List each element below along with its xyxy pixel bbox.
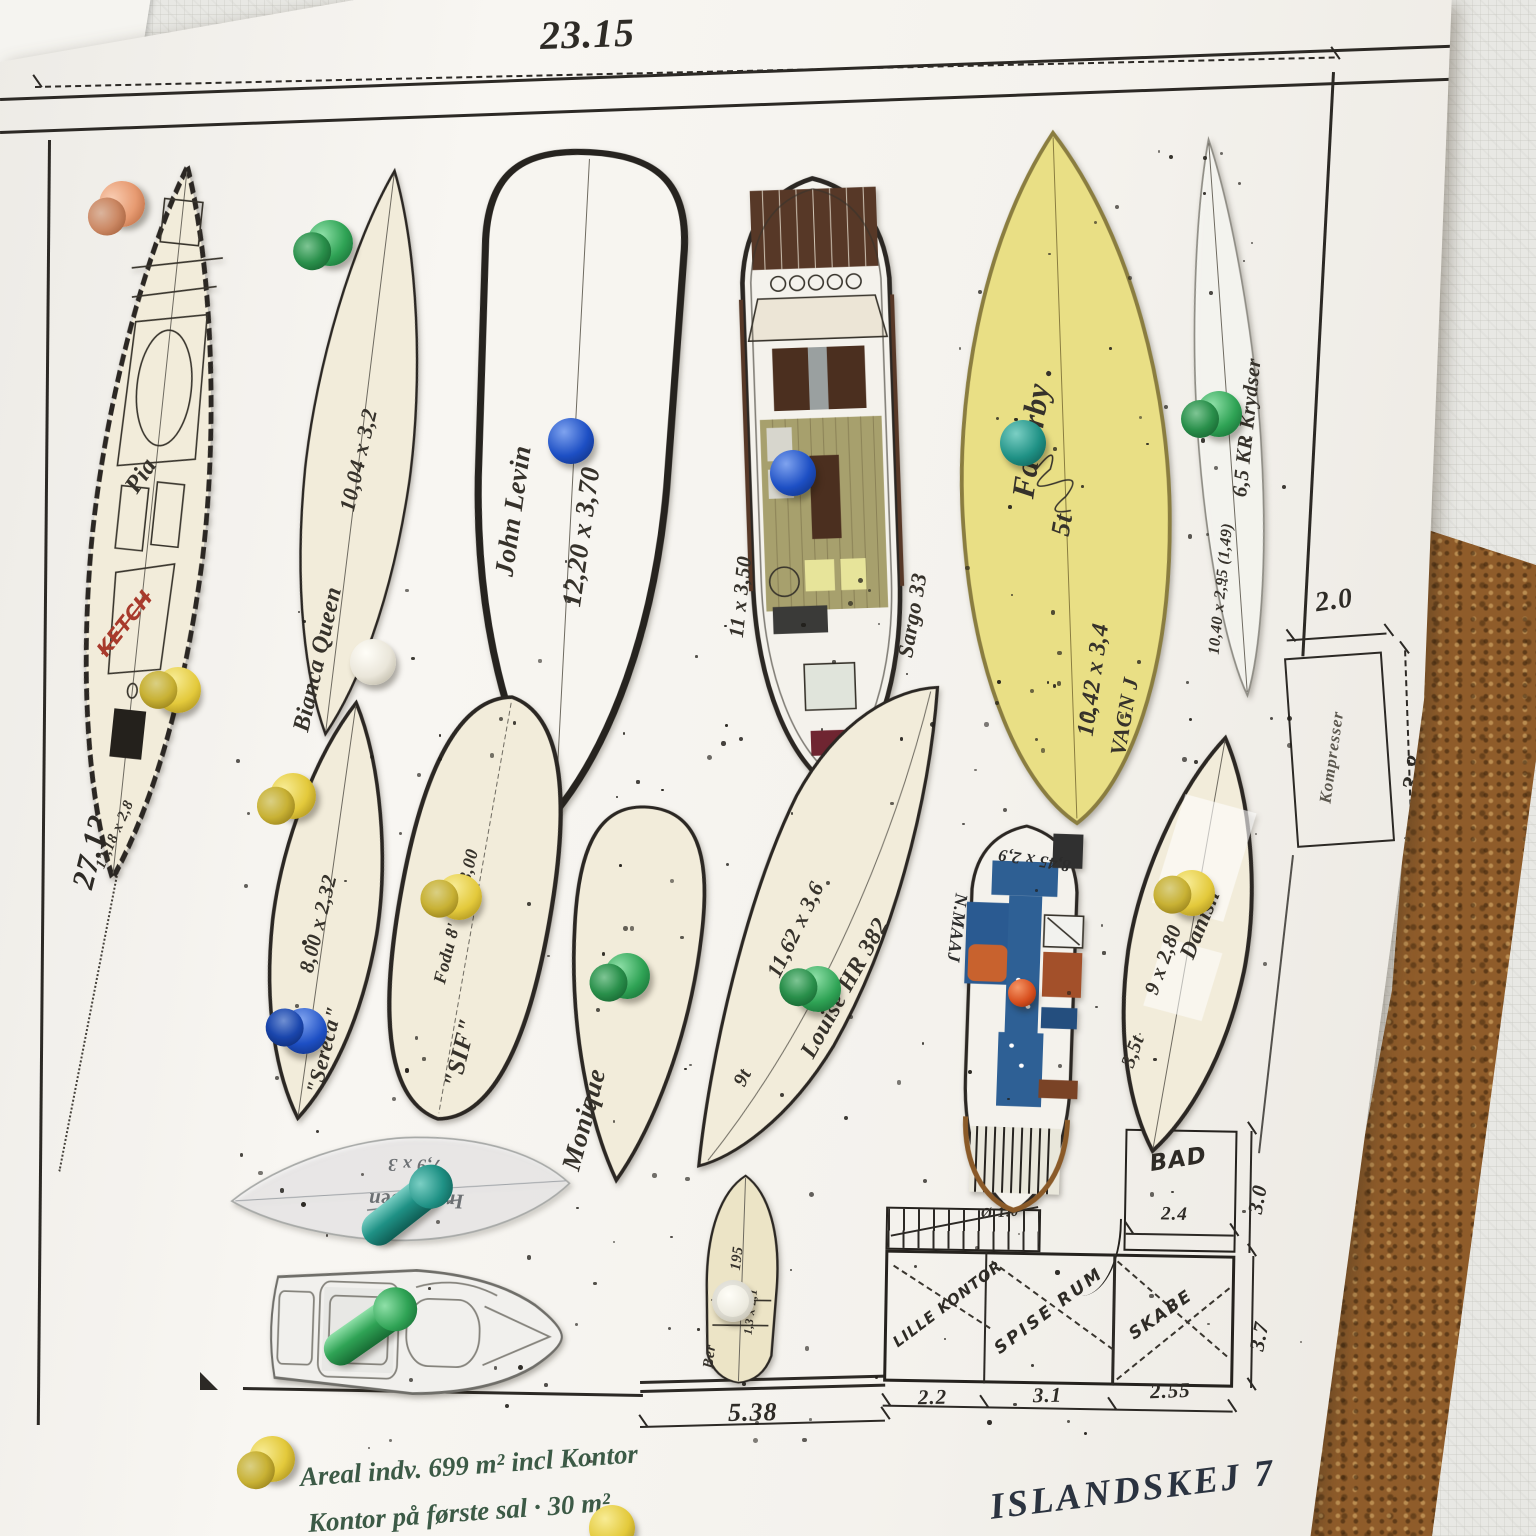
paper-dot (1067, 991, 1070, 994)
paper-dot (344, 880, 346, 882)
paper-dot (527, 1255, 531, 1259)
paper-dot (240, 1153, 244, 1157)
paper-dot (1008, 505, 1012, 509)
paper-dot (1018, 1233, 1020, 1235)
plan-sheet-wrap: 23.15 3.4 til indkørsel 27.12 5.38 2.0 (0, 0, 1536, 1536)
paper-dot (900, 737, 903, 740)
paper-dot (1101, 924, 1104, 927)
paper-dot (1055, 1270, 1059, 1274)
paper-dot (1128, 276, 1132, 280)
site-label: ISLANDSKEJ 7 (987, 1451, 1278, 1529)
paper-dot (623, 926, 628, 931)
paper-dot (1084, 1432, 1087, 1435)
dim-tick (1404, 837, 1415, 850)
paper-dot (1182, 757, 1187, 762)
paper-dot (544, 1383, 548, 1387)
paper-dot (389, 1439, 392, 1442)
paper-dot (984, 722, 988, 726)
boat-dim: 195 (728, 1246, 748, 1272)
paper-dot (258, 1171, 262, 1175)
paper-dot (1189, 718, 1192, 721)
paper-dot (436, 1220, 440, 1224)
pushpin-red (1008, 979, 1036, 1007)
paper-dot (1057, 681, 1061, 685)
paper-dot (505, 1404, 509, 1408)
bottom-dim-label: 5.38 (728, 1397, 778, 1428)
paper-dot (707, 755, 712, 760)
paper-dot (576, 1207, 579, 1210)
paper-dot (965, 566, 969, 570)
paper-dot (1158, 150, 1160, 152)
paper-dot (411, 657, 414, 660)
area-note: Areal indv. 699 m² incl Kontor (299, 1438, 639, 1493)
paper-dot (974, 769, 977, 772)
paper-dot (802, 1438, 806, 1442)
paper-dot (417, 773, 421, 777)
pushpin-yellow (243, 1430, 302, 1489)
paper-dot (538, 659, 541, 662)
boat-cutout-nmaaj: 8,45 x 2,9 N.MAAJ (938, 820, 1102, 1220)
dim-label-right-bottom: 3.7 (1244, 1319, 1274, 1352)
paper-dot (670, 879, 674, 883)
paper-dot (725, 724, 728, 727)
paper-dot (1270, 717, 1273, 720)
paper-dot (844, 1116, 848, 1120)
pushpin-white (712, 1280, 754, 1322)
pinboard-photo: 23.15 3.4 til indkørsel 27.12 5.38 2.0 (0, 0, 1536, 1536)
paper-dot (613, 1241, 615, 1243)
paper-dot (1287, 743, 1292, 748)
paper-dot (405, 589, 408, 592)
paper-dot (832, 660, 835, 663)
paper-dot (1243, 260, 1245, 262)
paper-dot (326, 1234, 328, 1236)
paper-dot (1102, 951, 1105, 954)
paper-dot (1146, 443, 1148, 445)
paper-dot (494, 1366, 497, 1369)
paper-dot (1263, 962, 1267, 966)
paper-dot (422, 1057, 425, 1060)
paper-dot (399, 832, 402, 835)
paper-dot (1081, 485, 1084, 488)
paper-dot (490, 701, 492, 703)
pushpin-blue (770, 450, 816, 496)
paper-dot (1053, 447, 1057, 451)
paper-dot (922, 1042, 925, 1045)
paper-dot (1149, 1294, 1154, 1299)
paper-dot (596, 1008, 600, 1012)
paper-dot (755, 1421, 759, 1425)
paper-dot (575, 1323, 578, 1326)
boat-hull (33, 154, 268, 892)
office-note: Kontor på første sal · 30 m² (307, 1487, 611, 1536)
paper-dot (697, 1328, 699, 1330)
paper-dot (1242, 1210, 1245, 1213)
paper-dot (630, 926, 634, 930)
paper-dot (652, 1173, 656, 1177)
boat-hull (260, 1257, 570, 1408)
paper-dot (513, 721, 516, 724)
pushpin-teal (1000, 420, 1046, 466)
paper-dot (821, 728, 824, 731)
paper-dot (1220, 152, 1223, 155)
paper-dot (801, 623, 805, 627)
paper-dot (1150, 1192, 1154, 1196)
paper-dot (680, 936, 683, 939)
pushpin-blue (548, 418, 594, 464)
paper-dot (623, 732, 625, 734)
paper-dot (527, 902, 531, 906)
paper-dot (1093, 711, 1096, 714)
boat-name: Ber (700, 1344, 720, 1370)
top-dimension-label: 23.15 (539, 9, 636, 59)
paper-dot (724, 625, 726, 627)
border-line (0, 44, 1467, 101)
paper-dot (742, 1382, 746, 1386)
paper-dot (415, 1036, 418, 1039)
paper-dot (897, 1080, 901, 1084)
paper-dot (1300, 1341, 1303, 1344)
border-line (0, 77, 1471, 134)
paper-dot (1188, 534, 1193, 539)
paper-dot (1109, 347, 1112, 350)
paper-dot (809, 1192, 814, 1197)
paper-dot (858, 578, 863, 583)
dim-label: 2.2 (918, 1385, 948, 1411)
paper-dot (1203, 156, 1207, 160)
paper-dot (1206, 533, 1209, 536)
dim-label: 2.55 (1150, 1378, 1192, 1404)
paper-dot (302, 940, 307, 945)
paper-dot (280, 1188, 285, 1193)
paper-dot (721, 741, 725, 745)
dim-label: 3.1 (1033, 1383, 1063, 1409)
compressor-height-label: 3.8 (1396, 753, 1432, 793)
paper-dot (1194, 760, 1198, 764)
paper-dot (567, 600, 570, 603)
boat-cutout-ber: Ber 195 1,3 x 2,1 (688, 1170, 795, 1388)
paper-dot (518, 1365, 523, 1370)
paper-dot (805, 1346, 809, 1350)
paper-dot (368, 1447, 370, 1449)
border-line (1301, 72, 1334, 656)
compressor-box: 2.0 Kompresser 3.8 (1280, 589, 1440, 879)
paper-dot (1249, 436, 1252, 439)
boat-cutout-motorboat-sketch (260, 1257, 570, 1408)
boat-cutout-pia: Pia KETCH 12,18 x 2,8 (33, 154, 268, 892)
paper-dot (1207, 1323, 1209, 1325)
pushpin-green (1196, 391, 1242, 437)
paper-dot (790, 1269, 792, 1271)
boat-hull (938, 820, 1102, 1220)
paper-dot (405, 1068, 410, 1073)
paper-dot (1035, 889, 1038, 892)
plan-sheet: 23.15 3.4 til indkørsel 27.12 5.38 2.0 (0, 0, 1536, 1536)
paper-dot (1282, 485, 1286, 489)
paper-dot (1095, 1006, 1098, 1009)
paper-dot (275, 1076, 279, 1080)
paper-dot (685, 1177, 689, 1181)
paper-dot (593, 1282, 597, 1286)
paper-dot (968, 1070, 972, 1074)
bad-width-label: 2.4 (1161, 1203, 1188, 1225)
paper-dot (695, 655, 698, 658)
dim-label-right-top: 3.0 (1243, 1182, 1273, 1215)
paper-dot (236, 759, 240, 763)
paper-dot (1137, 660, 1141, 664)
paper-dot (636, 780, 639, 783)
paper-dot (668, 1327, 671, 1330)
paper-dot (1186, 681, 1189, 684)
paper-dot (809, 1418, 812, 1421)
paper-dot (370, 755, 374, 759)
paper-dot (670, 1236, 673, 1239)
paper-dot (962, 823, 964, 825)
paper-dot (563, 584, 566, 587)
compressor-width-label: 2.0 (1313, 582, 1355, 619)
paper-dot (247, 812, 250, 815)
paper-dot (1203, 192, 1206, 195)
pushpin-white (350, 639, 396, 685)
paper-dot (295, 1004, 299, 1008)
paper-dot (906, 673, 908, 675)
dim-line-dotted (1404, 650, 1413, 845)
paper-dot (244, 884, 248, 888)
paper-dot (1209, 291, 1213, 295)
paper-dot (753, 1438, 758, 1443)
corner-mark (200, 1372, 218, 1390)
paper-dot (602, 952, 606, 956)
paper-dot (1171, 1191, 1174, 1194)
